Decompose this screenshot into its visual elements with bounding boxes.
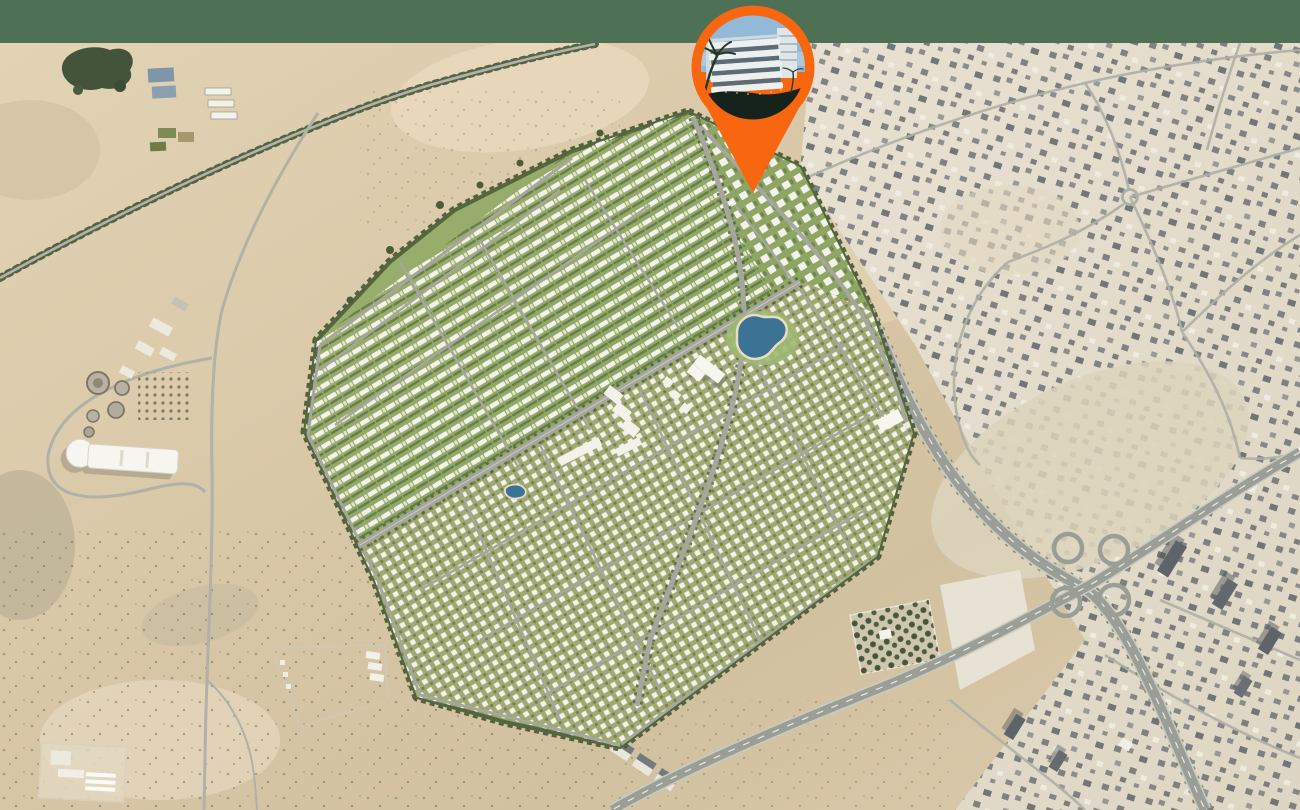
- compound-southwest: [39, 743, 127, 802]
- green-header-band: [0, 0, 1300, 43]
- desert-shrubs: [620, 700, 950, 810]
- small-pond: [505, 485, 526, 499]
- orchard: [138, 372, 190, 420]
- satellite-map[interactable]: [0, 0, 1300, 810]
- map-screenshot: [0, 0, 1300, 810]
- photo-apartment-block: [708, 34, 784, 93]
